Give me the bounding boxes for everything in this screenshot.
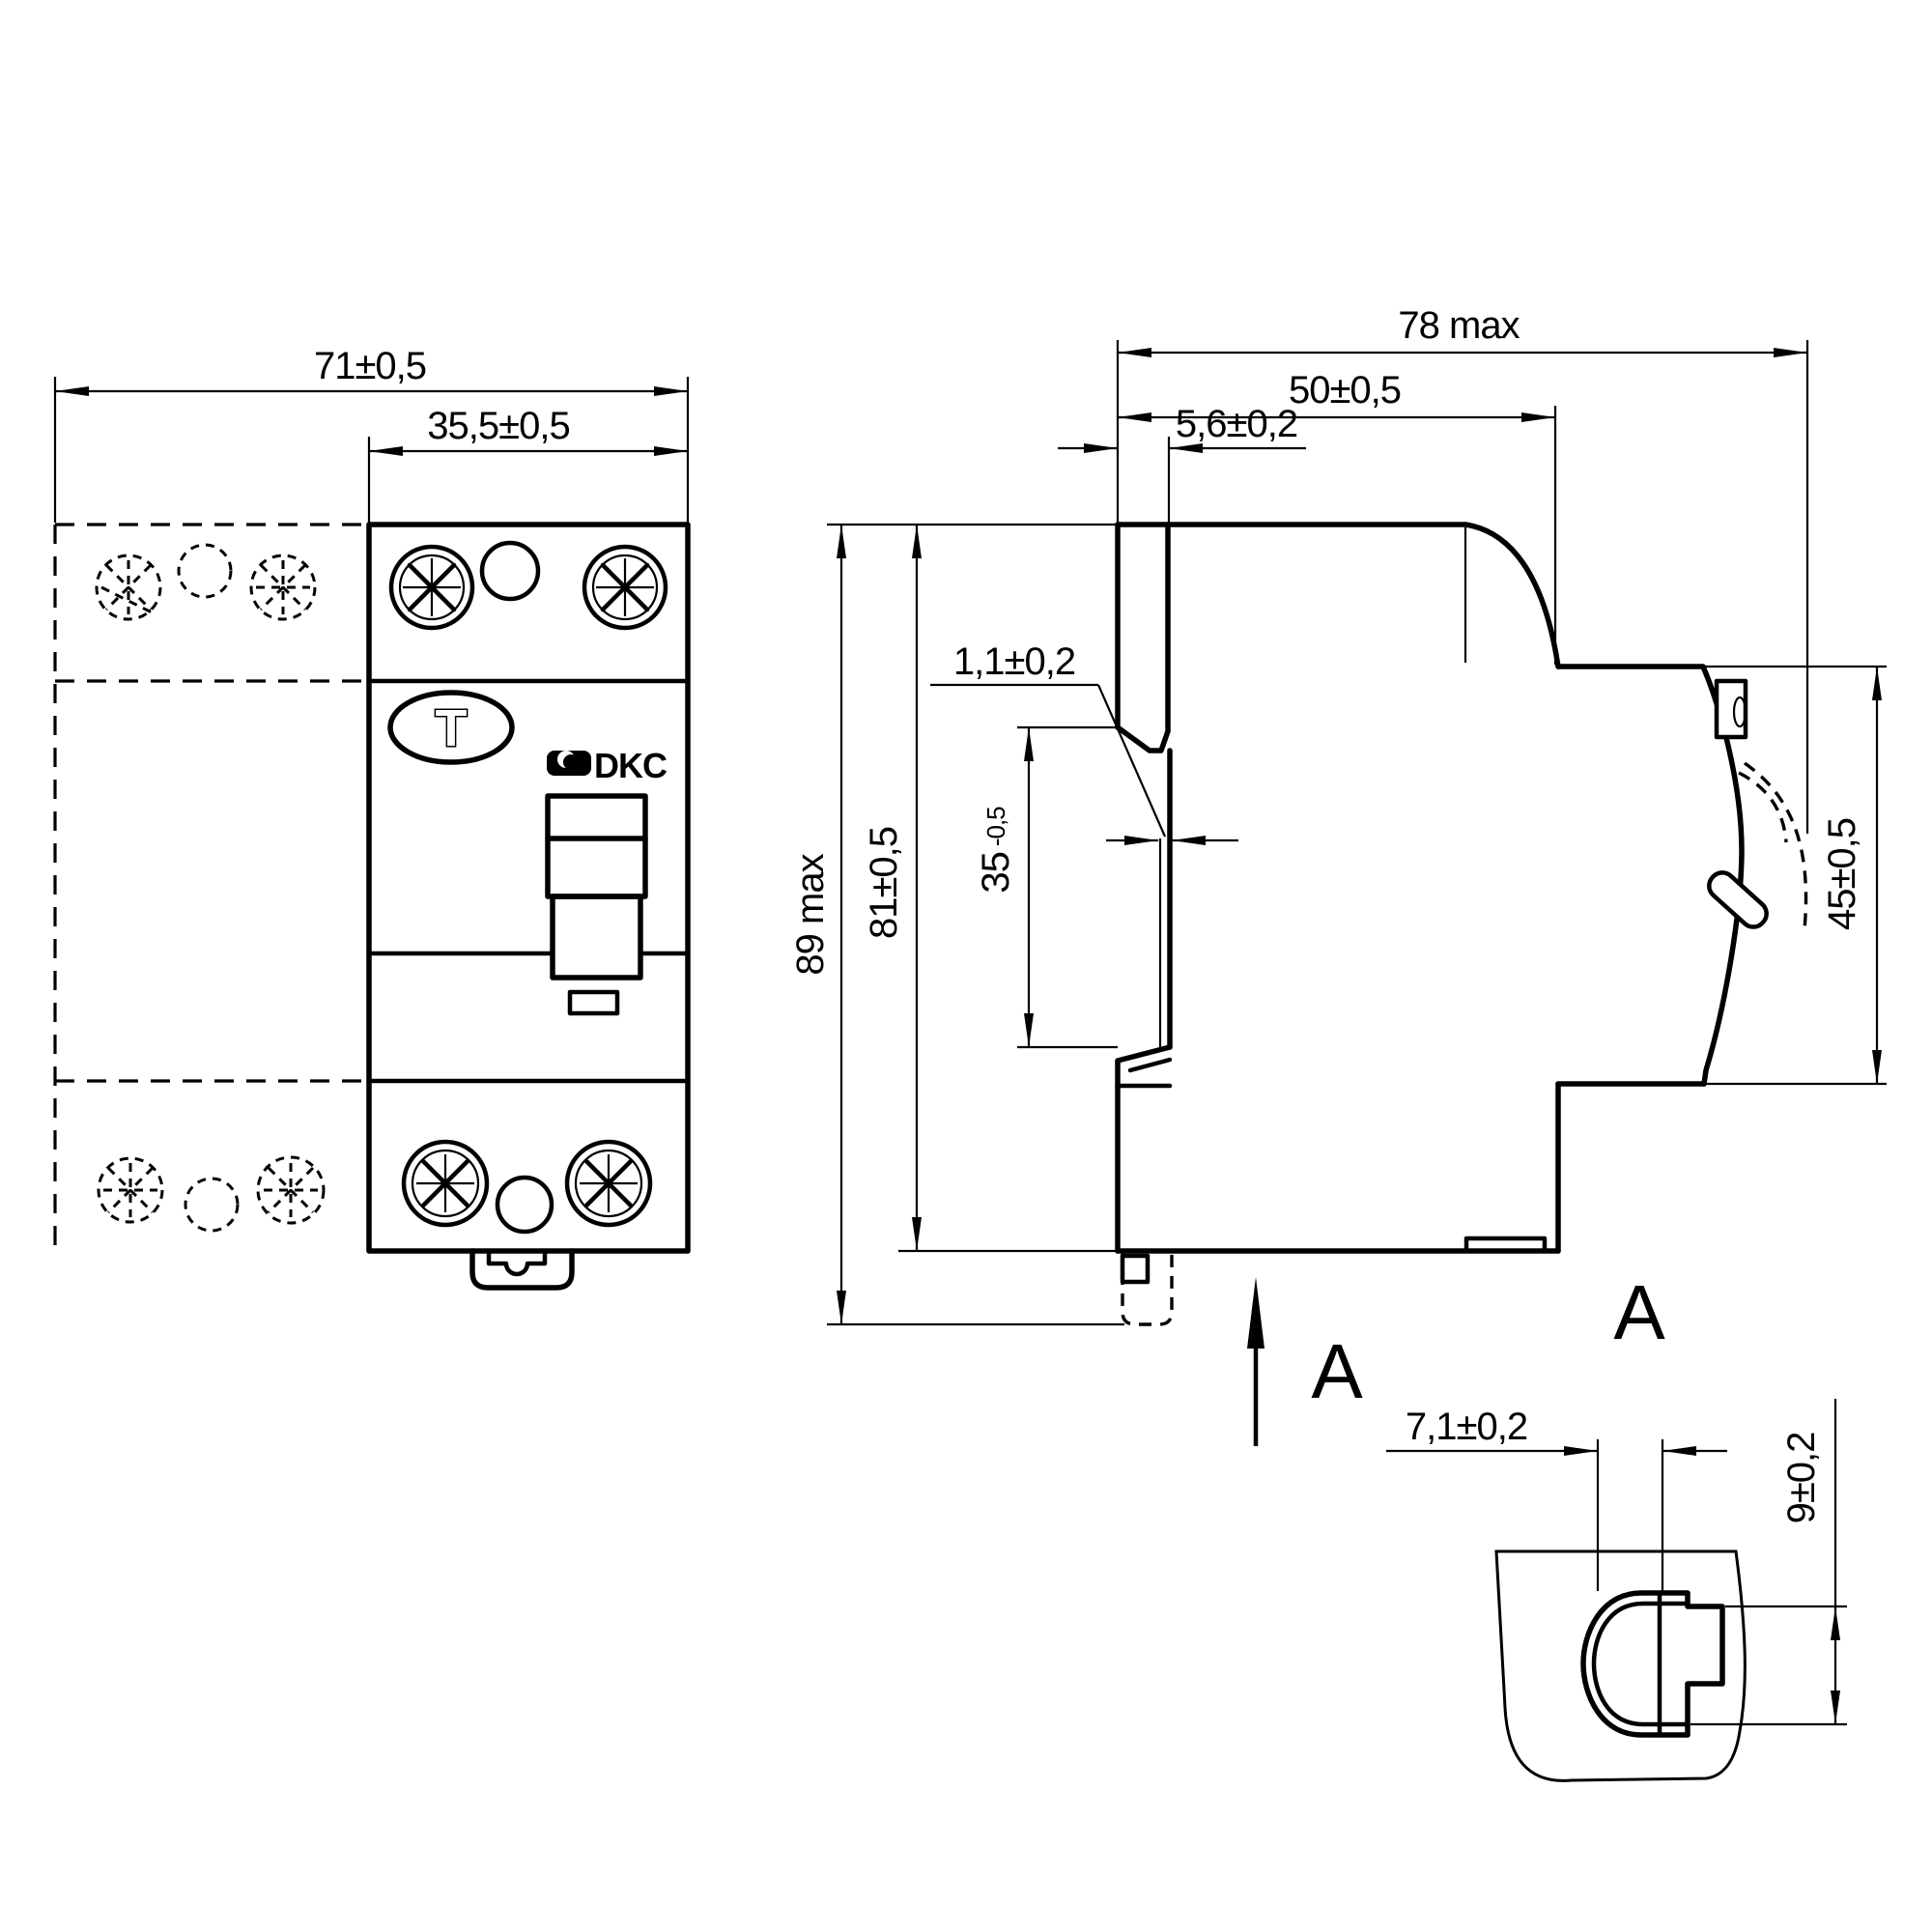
side-view: 78 max 50±0,5 5,6±0,2 89 max 81±0,5 [789,304,1887,1446]
toggle-switch [548,796,645,1013]
phantom-screw-icon [97,555,160,619]
test-button: T [390,693,512,762]
device-body-side [1118,525,1806,1324]
terminal-screw-icon [391,547,472,628]
section-arrow-label: A [1311,1328,1363,1414]
phantom-screw-icon [99,1158,162,1222]
terminal-screw-icon [584,547,666,628]
dim-rail-width: 35-0,5 [975,727,1118,1047]
phantom-hole-icon [179,545,231,597]
dim-rail-recess: 5,6±0,2 [1058,403,1306,523]
hole-icon [497,1178,552,1232]
dim-height-max-label: 89 max [789,853,832,975]
detail-title: A [1613,1269,1665,1355]
dim-depth-body-label: 50±0,5 [1289,369,1401,412]
brand-logo-text: DKC [594,746,668,785]
dim-front-face-label: 45±0,5 [1821,818,1863,930]
dim-clip-height-label: 9±0,2 [1780,1433,1823,1524]
detail-boundary [1496,1551,1745,1780]
dim-module-width-label: 35,5±0,5 [427,405,569,447]
dim-rail-recess-label: 5,6±0,2 [1176,403,1297,445]
detail-view: A 7,1±0,2 9±0,2 [1386,1269,1847,1780]
dim-total-width: 71±0,5 [55,345,688,523]
terminal-screw-icon [567,1142,650,1225]
section-arrow-icon [1247,1277,1264,1349]
toggle-window [570,992,617,1013]
section-arrow: A [1247,1277,1363,1446]
dim-clip-gap-label: 1,1±0,2 [953,640,1075,683]
lever-ghost [1739,773,1786,842]
device-body-front [369,525,688,1251]
dim-depth-max: 78 max [1118,304,1807,834]
din-clip-side [1122,1251,1172,1324]
phantom-screw-icon [251,555,315,619]
dim-total-width-label: 71±0,5 [314,345,426,387]
test-button-label: T [436,699,468,757]
front-view: 71±0,5 35,5±0,5 [55,345,688,1288]
dim-clip-width: 7,1±0,2 [1386,1406,1727,1594]
brand-logo: DKC [547,746,668,785]
technical-drawing-page: 71±0,5 35,5±0,5 [0,0,1932,1932]
phantom-hole-icon [185,1179,238,1231]
dim-clip-gap: 1,1±0,2 [930,640,1238,840]
dim-clip-height: 9±0,2 [1690,1399,1847,1724]
dim-height-body-label: 81±0,5 [863,827,905,939]
phantom-module [55,525,369,1251]
dim-module-width: 35,5±0,5 [369,405,688,523]
terminal-tab [1717,681,1746,737]
din-clip-front [472,1251,572,1288]
technical-drawing: 71±0,5 35,5±0,5 [0,0,1932,1932]
phantom-screw-icon [258,1157,324,1223]
hole-icon [482,543,538,599]
dim-rail-width-label: 35-0,5 [975,807,1017,894]
din-clip-detail [1583,1593,1722,1735]
dim-depth-max-label: 78 max [1398,304,1520,347]
terminal-screw-icon [404,1142,487,1225]
dim-clip-width-label: 7,1±0,2 [1406,1406,1527,1448]
